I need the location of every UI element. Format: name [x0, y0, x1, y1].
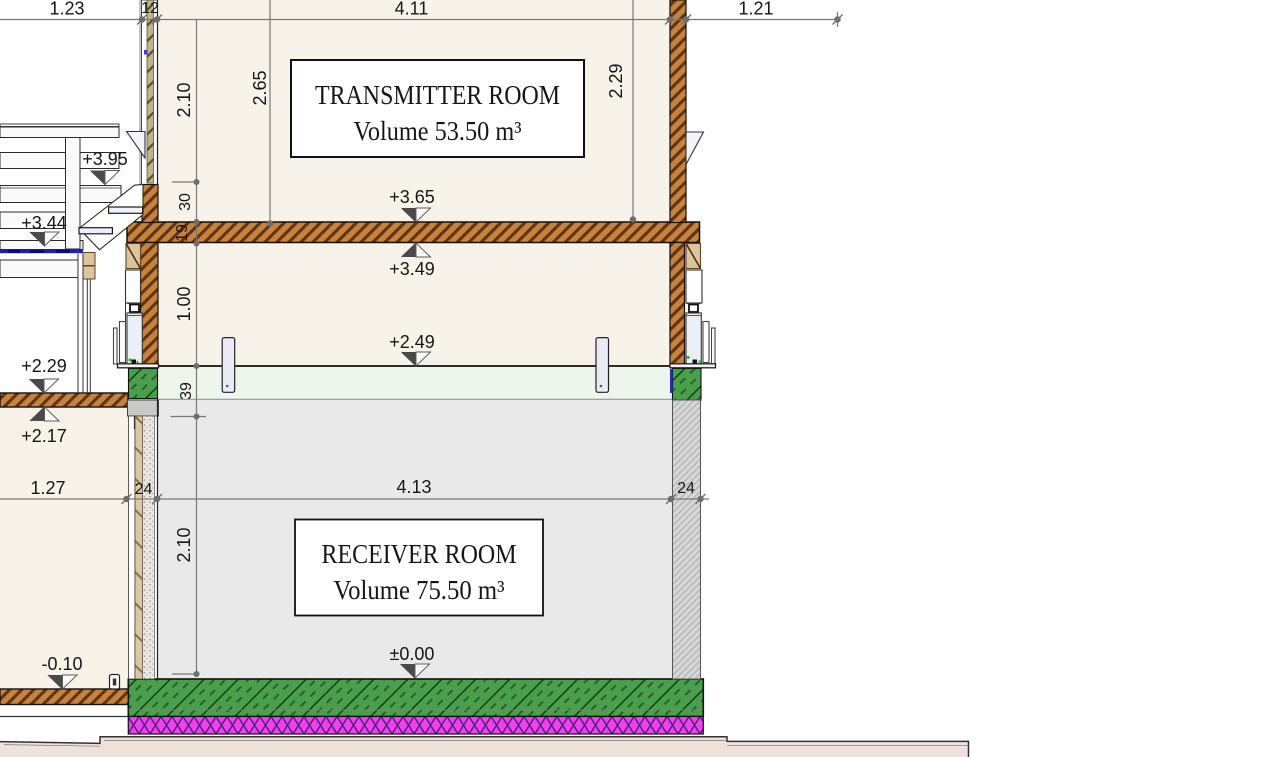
svg-text:±0.00: ±0.00: [390, 644, 435, 664]
svg-text:1.00: 1.00: [174, 286, 194, 321]
svg-text:1.23: 1.23: [49, 0, 84, 19]
svg-text:12: 12: [141, 0, 159, 17]
svg-text:Volume 75.50 m³: Volume 75.50 m³: [334, 575, 505, 605]
svg-text:+2.29: +2.29: [21, 356, 67, 376]
svg-text:30: 30: [177, 193, 194, 211]
svg-text:24: 24: [677, 480, 695, 497]
svg-text:39: 39: [178, 382, 195, 400]
svg-text:2.29: 2.29: [606, 63, 626, 98]
svg-text:+3.95: +3.95: [82, 149, 128, 169]
svg-text:+2.49: +2.49: [389, 332, 435, 352]
svg-text:RECEIVER ROOM: RECEIVER ROOM: [322, 539, 517, 569]
svg-text:4.13: 4.13: [396, 477, 431, 497]
svg-text:+3.65: +3.65: [389, 187, 435, 207]
svg-text:1.21: 1.21: [738, 0, 773, 19]
svg-text:Volume 53.50 m³: Volume 53.50 m³: [354, 116, 522, 146]
svg-text:2.10: 2.10: [174, 82, 194, 117]
svg-text:-0.10: -0.10: [41, 654, 82, 674]
svg-text:4.11: 4.11: [395, 0, 429, 19]
svg-text:24: 24: [135, 481, 153, 498]
svg-text:1.27: 1.27: [30, 478, 65, 498]
svg-text:TRANSMITTER ROOM: TRANSMITTER ROOM: [315, 80, 560, 110]
svg-text:2.10: 2.10: [174, 527, 194, 562]
svg-text:19: 19: [174, 224, 191, 242]
svg-text:+2.17: +2.17: [21, 426, 67, 446]
svg-text:2.65: 2.65: [250, 70, 270, 105]
svg-text:+3.44: +3.44: [21, 213, 67, 233]
svg-text:+3.49: +3.49: [389, 259, 435, 279]
